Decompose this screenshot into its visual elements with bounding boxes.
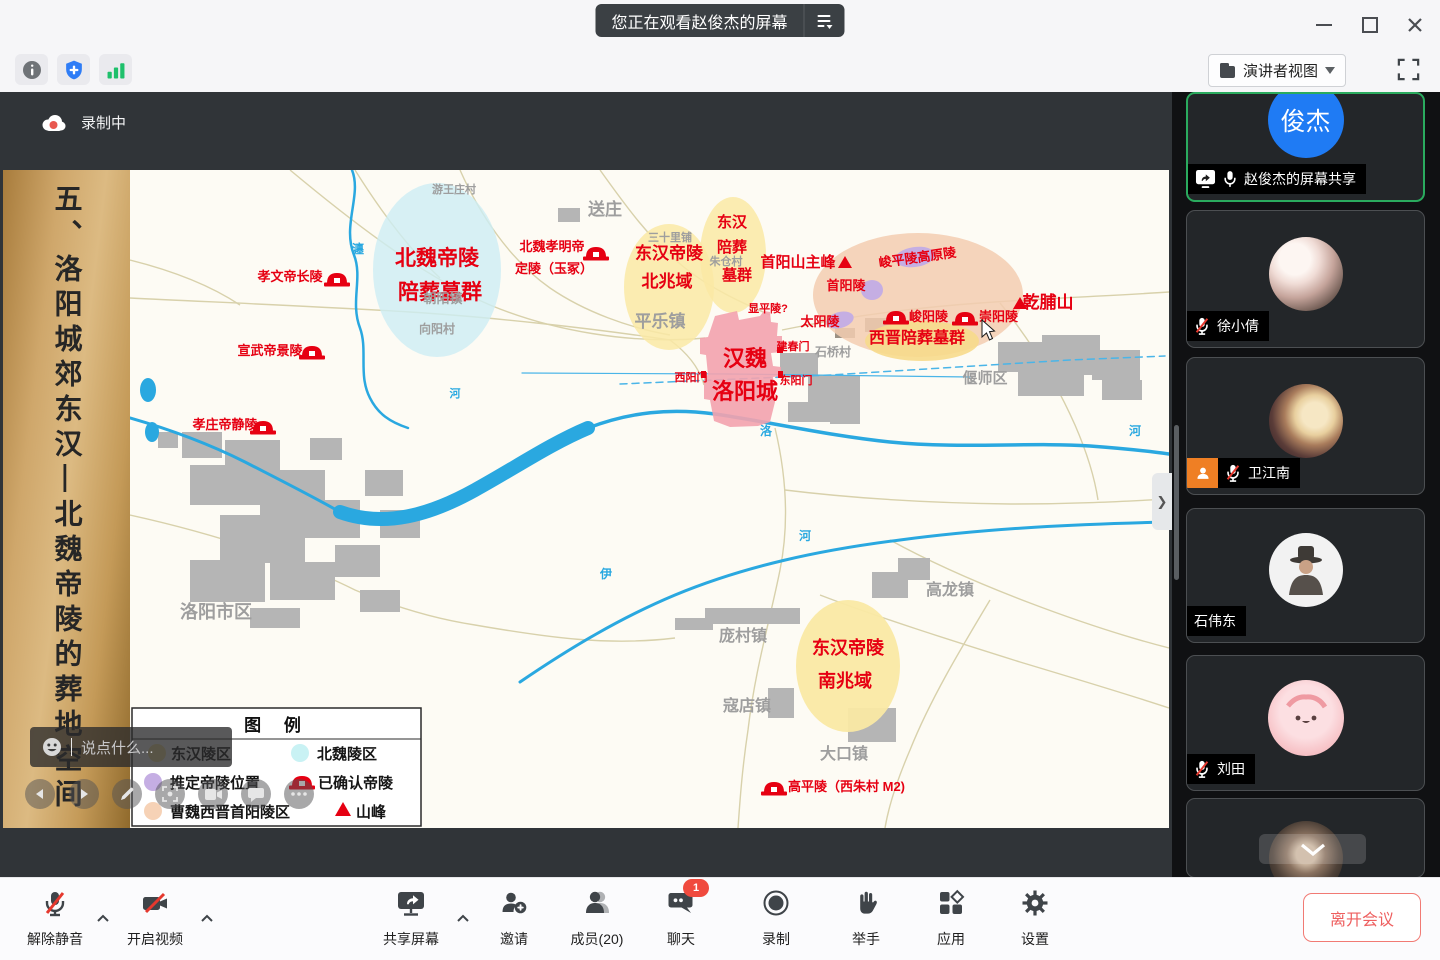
- map-label-river-chan: 瀍: [352, 241, 364, 256]
- map-label-xiaomingdi-1: 北魏孝明帝: [519, 239, 584, 254]
- chevron-down-icon: [1300, 843, 1326, 856]
- mic-muted-icon: [1194, 317, 1210, 335]
- recording-indicator[interactable]: 录制中: [40, 112, 126, 133]
- map-label-koudianzhen: 寇店镇: [722, 696, 771, 715]
- map-label-donghan-north-1: 东汉帝陵: [635, 243, 704, 263]
- invite-label: 邀请: [500, 929, 528, 949]
- invite-person-icon: [500, 889, 528, 917]
- ellipsis-icon: [291, 792, 307, 796]
- record-label: 录制: [762, 929, 790, 949]
- prev-slide-button[interactable]: [25, 779, 55, 809]
- leave-meeting-button[interactable]: 离开会议: [1303, 893, 1421, 942]
- map-label-xiaowendi-changling: 孝文帝长陵: [256, 269, 323, 284]
- maximize-button[interactable]: [1357, 12, 1383, 38]
- close-button[interactable]: [1402, 12, 1428, 38]
- map-label-qianfushan: 乾脯山: [1023, 292, 1074, 312]
- record-icon: [762, 889, 790, 917]
- maximize-icon: [1361, 16, 1379, 34]
- start-video-button[interactable]: 开启视频: [113, 885, 197, 953]
- chat-label: 聊天: [667, 929, 695, 949]
- prev-icon: [34, 788, 46, 800]
- avatar: [1269, 237, 1343, 311]
- watching-banner: 您正在观看赵俊杰的屏幕: [595, 4, 844, 37]
- signal-bars-icon: [105, 59, 127, 81]
- mic-muted-icon: [41, 889, 69, 917]
- members-label: 成员(20): [571, 929, 624, 949]
- apps-label: 应用: [937, 929, 965, 949]
- map-label-hanwei: 汉魏: [723, 346, 767, 371]
- share-screen-label: 共享屏幕: [383, 929, 439, 949]
- participant-tile-junjie[interactable]: 俊杰 赵俊杰的屏幕共享: [1186, 92, 1425, 202]
- record-button[interactable]: 录制: [734, 885, 818, 953]
- map-label-taiyangling: 太阳陵: [799, 314, 840, 329]
- map-lake: [140, 378, 156, 402]
- map-label-dakouzhen: 大口镇: [820, 744, 868, 763]
- chat-button[interactable]: 1 聊天: [639, 885, 723, 953]
- map-area: 图 例 东汉陵区 北魏陵区 推定帝陵位置 已确认帝陵 曹魏西晋首阳陵区: [130, 170, 1169, 828]
- member-badge-icon: [1187, 458, 1218, 488]
- security-button[interactable]: [57, 54, 90, 85]
- map-label-xuanwudi-jingling: 宣武帝景陵: [237, 343, 303, 358]
- participant-tile-weijiangnan[interactable]: 卫江南: [1186, 357, 1425, 495]
- raise-hand-label: 举手: [852, 929, 880, 949]
- next-icon: [78, 788, 90, 800]
- map-label-donghan-pei-1: 东汉: [717, 213, 748, 231]
- audio-options-chevron[interactable]: [96, 914, 110, 923]
- map-label-xiaomingdi-2: 定陵（玉冢）: [514, 261, 593, 276]
- raise-hand-icon: [852, 889, 880, 917]
- chat-placeholder: 说点什么...: [81, 737, 154, 758]
- map-label-gaopingling: 高平陵（西朱村 M2): [788, 779, 905, 794]
- participant-name: 徐小倩: [1217, 316, 1259, 336]
- participant-name: 石伟东: [1194, 611, 1236, 631]
- map-label-shouyangshan-peak: 首阳山主峰: [760, 253, 836, 271]
- text-cursor: [71, 738, 72, 756]
- comment-button[interactable]: [241, 779, 271, 809]
- map-label-river-he-w: 河: [450, 386, 461, 400]
- avatar: 俊杰: [1268, 92, 1344, 158]
- map-label-youwangzhuangcun: 游王庄村: [432, 182, 476, 196]
- avatar: [1269, 533, 1343, 607]
- meeting-window: 您正在观看赵俊杰的屏幕: [0, 0, 1440, 960]
- map-label-river-yi: 伊: [599, 566, 612, 581]
- layout-icon: [1219, 62, 1236, 79]
- fullscreen-button[interactable]: [1395, 56, 1422, 83]
- map-label-donghan-north-2: 北兆域: [642, 271, 693, 291]
- video-camera-icon: [205, 788, 222, 801]
- region-donghan-south: [796, 600, 900, 732]
- map-label-gaolongzhen: 高龙镇: [926, 580, 974, 599]
- map-label-xiangyangcun: 向阳村: [419, 321, 455, 336]
- titlebar: 您正在观看赵俊杰的屏幕: [0, 0, 1440, 92]
- map-label-pinglezhen: 平乐镇: [635, 311, 686, 331]
- participant-name: 赵俊杰的屏幕共享: [1244, 169, 1356, 189]
- pencil-icon: [120, 787, 134, 801]
- mic-muted-icon: [1225, 464, 1241, 482]
- view-mode-button[interactable]: 演讲者视图: [1208, 54, 1346, 87]
- map-label-donghan-south-1: 东汉帝陵: [812, 637, 885, 658]
- share-screen-icon: [396, 889, 426, 917]
- map-label-junyangling: 峻阳陵: [909, 309, 949, 324]
- mic-muted-icon: [1194, 760, 1210, 778]
- view-mode-label: 演讲者视图: [1243, 60, 1318, 81]
- participant-name: 卫江南: [1248, 463, 1290, 483]
- members-button[interactable]: 成员(20): [555, 885, 639, 953]
- legend-label-caowei: 曹魏西晋首阳陵区: [170, 803, 290, 821]
- watching-banner-text: 您正在观看赵俊杰的屏幕: [595, 9, 803, 33]
- participant-tag: 刘田: [1187, 754, 1255, 784]
- settings-button[interactable]: 设置: [993, 885, 1077, 953]
- map-label-luoyang-city: 洛阳市区: [180, 601, 252, 622]
- legend-label-beiwei: 北魏陵区: [317, 745, 377, 763]
- apps-icon: [937, 889, 965, 917]
- map-label-river-luo: 洛: [760, 423, 773, 438]
- map-label-xiyangmen: 西阳门: [675, 370, 708, 384]
- laser-icon: [162, 786, 178, 802]
- map-label-river-he-s: 河: [798, 528, 811, 543]
- map-label-pangcunzhen: 庞村镇: [719, 626, 767, 645]
- map-legend: 图 例 东汉陵区 北魏陵区 推定帝陵位置 已确认帝陵 曹魏西晋首阳陵区: [132, 708, 421, 826]
- chat-quick-input[interactable]: 说点什么...: [30, 727, 232, 767]
- map-label-yanshiqu: 偃师区: [962, 369, 1007, 387]
- shared-screen-region: 录制中 五、洛阳城郊东汉—北魏帝陵的葬地空间: [0, 92, 1172, 878]
- avatar: [1268, 680, 1344, 756]
- legend-label-queren: 已确认帝陵: [318, 774, 394, 792]
- video-button[interactable]: [198, 779, 228, 809]
- members-icon: [583, 889, 611, 917]
- start-video-label: 开启视频: [127, 929, 183, 949]
- raise-hand-button[interactable]: 举手: [824, 885, 908, 953]
- close-icon: [1406, 16, 1424, 34]
- video-options-chevron[interactable]: [200, 914, 214, 923]
- stage: 录制中 五、洛阳城郊东汉—北魏帝陵的葬地空间: [0, 92, 1440, 878]
- map-label-beiwei-diling: 北魏帝陵: [395, 246, 480, 270]
- laser-pointer-button[interactable]: [155, 779, 185, 809]
- speech-bubble-icon: [248, 787, 264, 802]
- annotate-button[interactable]: [112, 779, 142, 809]
- avatar-initials: 俊杰: [1280, 102, 1330, 138]
- settings-label: 设置: [1021, 929, 1049, 949]
- network-stats-button[interactable]: [99, 54, 132, 85]
- participant-tag: 石伟东: [1187, 606, 1246, 636]
- recording-label: 录制中: [81, 112, 126, 133]
- map-label-xijin-peizang: 西晋陪葬墓群: [869, 328, 965, 347]
- meeting-info-button[interactable]: [15, 54, 48, 85]
- participant-tile-shiweidong[interactable]: 石伟东: [1186, 508, 1425, 643]
- participant-tile-xuxiaoqian[interactable]: 徐小倩: [1186, 210, 1425, 348]
- legend-swatch-beiwei: [291, 744, 309, 762]
- map-label-xianpingling: 显平陵?: [748, 301, 788, 315]
- shield-plus-icon: [63, 59, 85, 81]
- leave-meeting-label: 离开会议: [1330, 906, 1394, 930]
- mic-on-icon: [1223, 170, 1237, 188]
- map-graphic: 图 例 东汉陵区 北魏陵区 推定帝陵位置 已确认帝陵 曹魏西晋首阳陵区: [130, 170, 1169, 828]
- watching-banner-menu[interactable]: [804, 4, 845, 37]
- camera-off-icon: [141, 889, 169, 917]
- chevron-down-icon: [1325, 67, 1335, 74]
- map-label-donghan-pei-3: 墓群: [721, 266, 752, 284]
- participant-tile-liutian[interactable]: 刘田: [1186, 655, 1425, 791]
- next-slide-button[interactable]: [69, 779, 99, 809]
- map-label-sanshilipu: 三十里铺: [648, 230, 692, 244]
- gear-icon: [1021, 889, 1049, 917]
- map-label-luoyangcheng: 洛阳城: [712, 379, 778, 404]
- share-screen-button[interactable]: 共享屏幕: [369, 885, 453, 953]
- legend-title: 图 例: [244, 715, 310, 735]
- apps-button[interactable]: 应用: [909, 885, 993, 953]
- participant-tile-more[interactable]: [1186, 798, 1425, 878]
- map-label-jianchunmen: 建春门: [777, 339, 810, 353]
- legend-label-shanfeng: 山峰: [356, 803, 387, 821]
- minimize-icon: [1315, 16, 1333, 34]
- emoji-icon[interactable]: [42, 737, 62, 757]
- info-icon: [22, 60, 42, 80]
- cloud-recording-icon: [40, 113, 68, 133]
- bottom-toolbar: 解除静音 开启视频 共享屏幕: [0, 877, 1440, 960]
- map-label-river-he-e: 河: [1128, 423, 1141, 438]
- list-menu-icon: [816, 12, 834, 30]
- map-label-shouyangling: 首阳陵: [826, 278, 866, 293]
- sidebar-collapse-tab[interactable]: ❯: [1152, 473, 1172, 530]
- chat-badge: 1: [683, 879, 709, 897]
- map-label-donghan-pei-2: 陪葬: [717, 238, 747, 256]
- share-options-chevron[interactable]: [456, 914, 470, 923]
- participant-tag: 卫江南: [1187, 458, 1300, 488]
- map-label-shiqiaocun: 石桥村: [814, 344, 851, 359]
- invite-button[interactable]: 邀请: [472, 885, 556, 953]
- map-label-dongyangmen: 东阳门: [780, 373, 813, 387]
- screen-share-icon: [1195, 169, 1216, 189]
- unmute-button[interactable]: 解除静音: [13, 885, 97, 953]
- map-label-zhucangcun: 朱仓村: [709, 254, 743, 268]
- map-label-donghan-south-2: 南兆域: [818, 670, 872, 691]
- map-label-chaoyangzhen: 朝阳镇: [423, 291, 462, 306]
- unmute-label: 解除静音: [27, 929, 83, 949]
- scroll-participants-button[interactable]: [1259, 834, 1366, 864]
- participant-name: 刘田: [1217, 759, 1245, 779]
- map-lake: [145, 422, 159, 442]
- avatar: [1269, 384, 1343, 458]
- minimize-button[interactable]: [1311, 12, 1337, 38]
- participant-tag: 徐小倩: [1187, 311, 1269, 341]
- fullscreen-icon: [1395, 56, 1422, 83]
- more-options-button[interactable]: [284, 779, 314, 809]
- sidebar-scrollbar[interactable]: [1174, 425, 1179, 580]
- map-label-chongyangling: 崇阳陵: [979, 309, 1019, 324]
- map-label-xiaozhuangdi-jingling: 孝庄帝静陵: [191, 417, 258, 432]
- map-label-songzhuang: 送庄: [588, 199, 622, 219]
- participant-tag: 赵俊杰的屏幕共享: [1188, 164, 1366, 194]
